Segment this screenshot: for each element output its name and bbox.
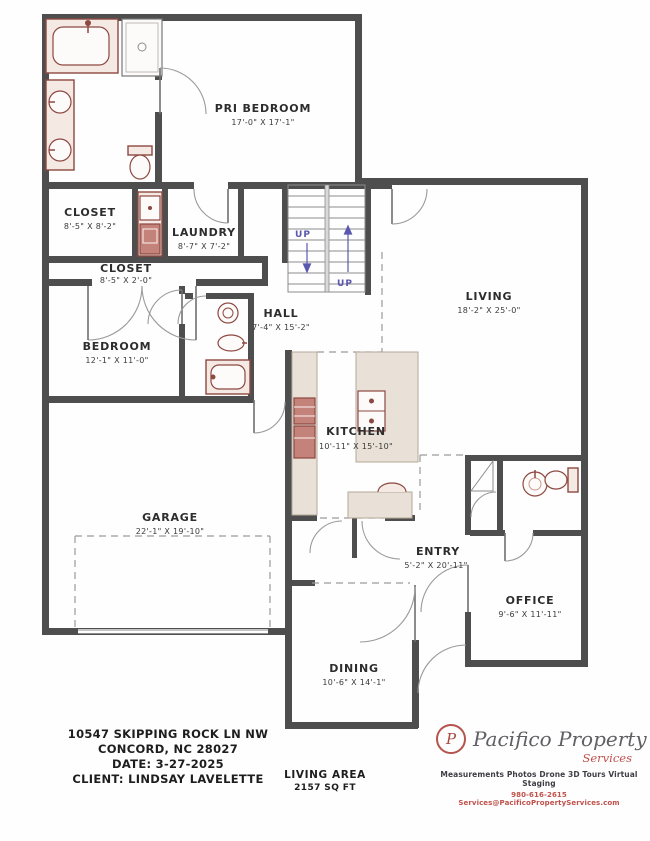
door-office — [421, 565, 468, 612]
pedestal-sink — [523, 470, 547, 496]
company-subtitle: Services — [436, 751, 632, 765]
sink — [218, 335, 247, 351]
stairs-down-arrow — [304, 243, 311, 272]
floor-plan-page: UP UP — [0, 0, 650, 841]
room-dims-living: 18'-2" X 25'-0" — [457, 306, 520, 315]
client-line: CLIENT: LINDSAY LAVELETTE — [48, 772, 288, 787]
living-area-value: 2157 SQ FT — [258, 783, 392, 793]
room-label-kitchen: KITCHEN — [326, 425, 386, 438]
room-dims-kitchen: 10'-11" X 15'-10" — [319, 442, 393, 451]
room-label-entry: ENTRY — [416, 545, 460, 558]
room-dims-closet-1: 8'-5" X 8'-2" — [64, 222, 116, 231]
room-dims-laundry: 8'-7" X 7'-2" — [178, 242, 230, 251]
room-label-garage: GARAGE — [142, 511, 198, 524]
room-dims-hall: 7'-4" X 15'-2" — [252, 323, 310, 332]
door-dining-side — [418, 645, 466, 693]
room-dims-garage: 22'-1" X 19'-10" — [136, 527, 205, 536]
room-label-dining: DINING — [329, 662, 379, 675]
room-dims-entry: 5'-2" X 20'-11" — [404, 561, 467, 570]
room-label-office: OFFICE — [506, 594, 555, 607]
room-label-bedroom: BEDROOM — [83, 340, 152, 353]
stairs-up-label-2: UP — [337, 279, 353, 289]
room-label-closet-2: CLOSET — [100, 262, 152, 275]
living-area-block: LIVING AREA 2157 SQ FT — [258, 769, 392, 793]
primary-bath-fixtures — [46, 19, 162, 179]
room-label-closet-1: CLOSET — [64, 206, 116, 219]
laundry-appliances — [138, 192, 162, 256]
room-label-living: LIVING — [466, 290, 513, 303]
powder-room-fixtures — [471, 461, 578, 496]
room-dims-pri-bedroom: 17'-0" X 17'-1" — [231, 118, 294, 127]
door-garage — [254, 400, 285, 433]
address-line-2: CONCORD, NC 28027 — [48, 742, 288, 757]
refrigerator — [294, 426, 315, 458]
door-mud-closet-1 — [310, 521, 342, 553]
company-name: Pacifico Property — [473, 727, 647, 751]
stairs-up-label-1: UP — [295, 230, 311, 240]
plan-info-block: 10547 SKIPPING ROCK LN NW CONCORD, NC 28… — [48, 727, 288, 787]
door-dining — [360, 585, 415, 642]
door-under-stair-closet — [471, 492, 496, 517]
toilet — [545, 468, 578, 492]
door-closet2-left — [88, 286, 142, 340]
door-powder-room — [505, 533, 533, 561]
room-label-hall: HALL — [264, 307, 299, 320]
door-laundry — [194, 189, 228, 223]
date-line: DATE: 3-27-2025 — [48, 757, 288, 772]
stairs-up-arrow — [345, 226, 352, 272]
door-mud-closet-2 — [362, 521, 400, 559]
room-label-pri-bedroom: PRI BEDROOM — [215, 102, 311, 115]
staircase: UP UP — [288, 185, 365, 292]
company-contact: 980-616-2615 Services@PacificoPropertySe… — [436, 791, 642, 807]
branding-block: P Pacifico Property Services Measurement… — [436, 724, 642, 807]
shower — [122, 19, 162, 76]
toilet — [128, 146, 152, 179]
door-primary-bath — [160, 68, 206, 114]
living-area-label: LIVING AREA — [258, 769, 392, 781]
room-dims-office: 9'-6" X 11'-11" — [498, 610, 561, 619]
room-dims-dining: 10'-6" X 14'-1" — [322, 678, 385, 687]
toilet — [218, 303, 238, 323]
bathtub — [206, 360, 250, 394]
door-pri-bedroom — [392, 189, 427, 224]
address-line-1: 10547 SKIPPING ROCK LN NW — [48, 727, 288, 742]
under-stair-closet — [471, 461, 493, 491]
room-dims-closet-2: 8'-5" X 2'-0" — [100, 276, 152, 285]
kitchen-sink-counter — [348, 483, 412, 518]
bath2-fixtures — [206, 303, 250, 394]
floor-plan-drawing: UP UP — [0, 0, 650, 730]
wall-oven — [294, 398, 315, 424]
room-dims-bedroom: 12'-1" X 11'-0" — [85, 356, 148, 365]
room-label-laundry: LAUNDRY — [172, 226, 236, 239]
garage-door-opening — [78, 629, 268, 634]
company-logo-icon: P — [436, 724, 466, 754]
company-tagline: Measurements Photos Drone 3D Tours Virtu… — [436, 770, 642, 788]
